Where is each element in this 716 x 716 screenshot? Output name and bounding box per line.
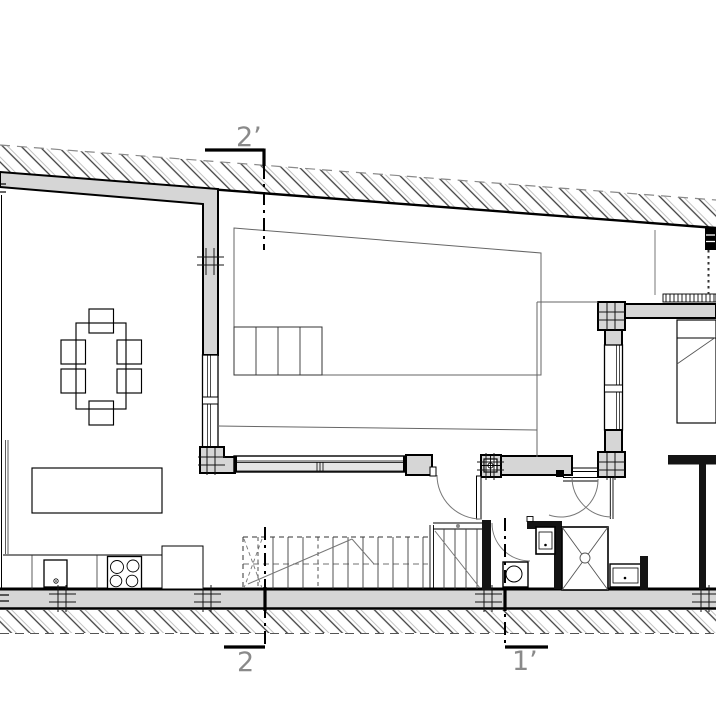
wardrobe [234,327,322,375]
south-window-band [234,456,406,472]
section-label-2: 2 [237,647,254,678]
chair [89,401,114,425]
corner-column [200,447,235,473]
stair-bath-wall [482,520,491,590]
wall-section-end [705,228,716,250]
wc-door [492,523,530,561]
stair-hall-door [437,475,481,519]
entry-walls [406,455,598,477]
stair-treads [258,537,423,589]
chair [61,340,86,364]
tall-cabinet [162,546,203,589]
kitchen-island [32,468,162,513]
basin-wall-stub [640,556,648,590]
wc-sink [536,527,555,554]
dining-set [61,309,142,425]
door-stop [556,470,564,477]
chair [61,369,86,393]
chair [117,369,142,393]
bottom-wall-band [0,589,716,634]
shower [562,527,608,590]
closet-wall [668,455,716,589]
kitchen-sink [44,560,67,587]
floor-plan-drawing: 2’ 2 1’ [0,0,716,716]
cooktop [108,557,142,589]
toilet [503,562,528,587]
dining-table [76,323,126,409]
bed [677,320,716,423]
chair [117,340,142,364]
kitchen [3,468,203,589]
stairs [243,523,482,589]
section-label-2-prime: 2’ [236,122,262,153]
bedroom-window [605,345,623,430]
chair [89,309,114,333]
washbasin [610,564,641,587]
floor-plan-canvas: 2’ 2 1’ [0,0,716,716]
living-room-window [203,355,219,448]
grille-strip [663,294,716,302]
section-label-1-prime: 1’ [512,646,538,677]
stair-dot [456,524,460,528]
wall-pier [406,455,432,475]
